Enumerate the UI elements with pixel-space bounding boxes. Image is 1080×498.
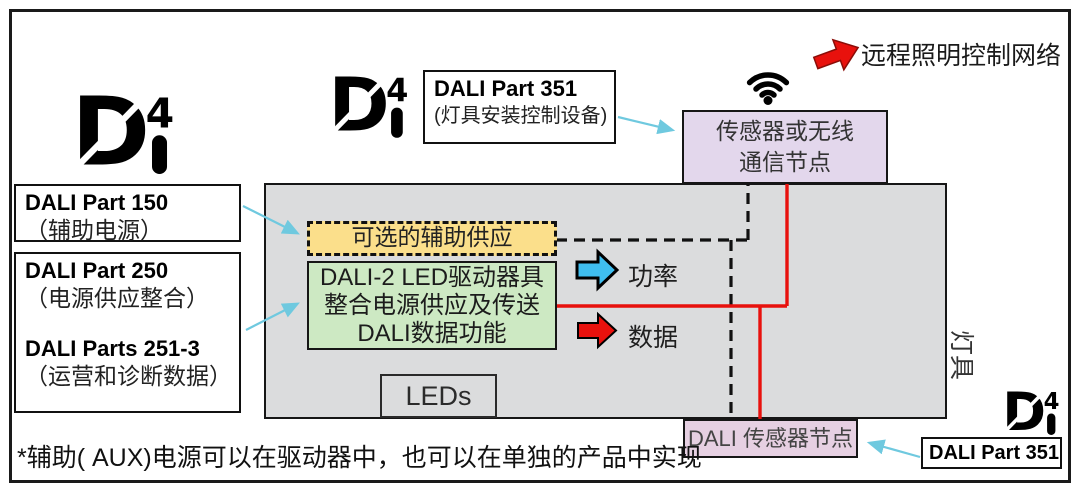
part351-bottom-title: DALI Part 351 (929, 441, 1054, 465)
aux-power-dashed-path (556, 184, 748, 419)
part250-title: DALI Part 250 (25, 257, 230, 284)
pointer-part351-to-sensor (870, 443, 920, 457)
parts251-3-title: DALI Parts 251-3 (25, 335, 230, 362)
dali-data-red-path (556, 184, 787, 419)
label-box-dali-part-351-bottom: DALI Part 351 (921, 437, 1062, 469)
power-label: 功率 (628, 257, 678, 293)
part250-subtitle: （电源供应整合） (25, 284, 230, 312)
label-box-dali-part-250: DALI Part 250 （电源供应整合） DALI Parts 251-3 … (14, 252, 241, 413)
pointer-part351-to-wireless (618, 117, 672, 130)
sensor-node-box: DALI 传感器节点 (683, 419, 858, 458)
led-driver-line3: DALI数据功能 (309, 320, 555, 348)
data-block-arrow-icon (578, 314, 616, 347)
wireless-node-box: 传感器或无线 通信节点 (682, 110, 888, 184)
parts251-3-subtitle: （运营和诊断数据） (25, 362, 230, 390)
sensor-node-label: DALI 传感器节点 (688, 426, 853, 451)
diagram-canvas: D 4 D 4 D 4 DALI Part 150 （辅助电源） DALI Pa… (0, 0, 1080, 498)
svg-text:4: 4 (1044, 389, 1060, 415)
part351-top-subtitle: (灯具安装控制设备) (434, 102, 605, 130)
pointer-part250-to-driver (246, 304, 297, 330)
wifi-icon (738, 57, 798, 105)
optional-aux-label: 可选的辅助供应 (352, 224, 513, 250)
power-block-arrow-icon (577, 252, 617, 288)
svg-text:4: 4 (146, 91, 175, 137)
leds-label: LEDs (405, 381, 471, 411)
svg-text:4: 4 (386, 73, 408, 110)
wireless-node-line2: 通信节点 (684, 147, 886, 178)
leds-box: LEDs (380, 374, 497, 418)
part351-top-title: DALI Part 351 (434, 75, 605, 102)
luminaire-label: 灯具 (945, 325, 981, 385)
d4i-logo-bottom-right-icon: D 4 (1005, 389, 1062, 435)
remote-network-label: 远程照明控制网络 (861, 36, 1061, 72)
d4i-logo-top-left-icon: D 4 (76, 91, 179, 174)
part150-title: DALI Part 150 (25, 189, 230, 216)
led-driver-line2: 整合电源供应及传送 (309, 292, 555, 320)
remote-network-arrow-icon (810, 33, 863, 78)
label-box-dali-part-351-top: DALI Part 351 (灯具安装控制设备) (423, 70, 616, 144)
led-driver-box: DALI-2 LED驱动器具 整合电源供应及传送 DALI数据功能 (307, 261, 557, 350)
led-driver-line1: DALI-2 LED驱动器具 (309, 264, 555, 292)
label-box-dali-part-150: DALI Part 150 （辅助电源） (14, 184, 241, 242)
aux-footnote: *辅助( AUX)电源可以在驱动器中，也可以在单独的产品中实现 (17, 438, 702, 474)
optional-aux-supply-box: 可选的辅助供应 (307, 221, 557, 256)
part150-subtitle: （辅助电源） (25, 216, 230, 244)
data-label: 数据 (628, 318, 678, 354)
wireless-node-line1: 传感器或无线 (684, 116, 886, 147)
pointer-part150-to-aux (243, 206, 297, 233)
d4i-logo-middle-icon: D 4 (332, 73, 412, 138)
